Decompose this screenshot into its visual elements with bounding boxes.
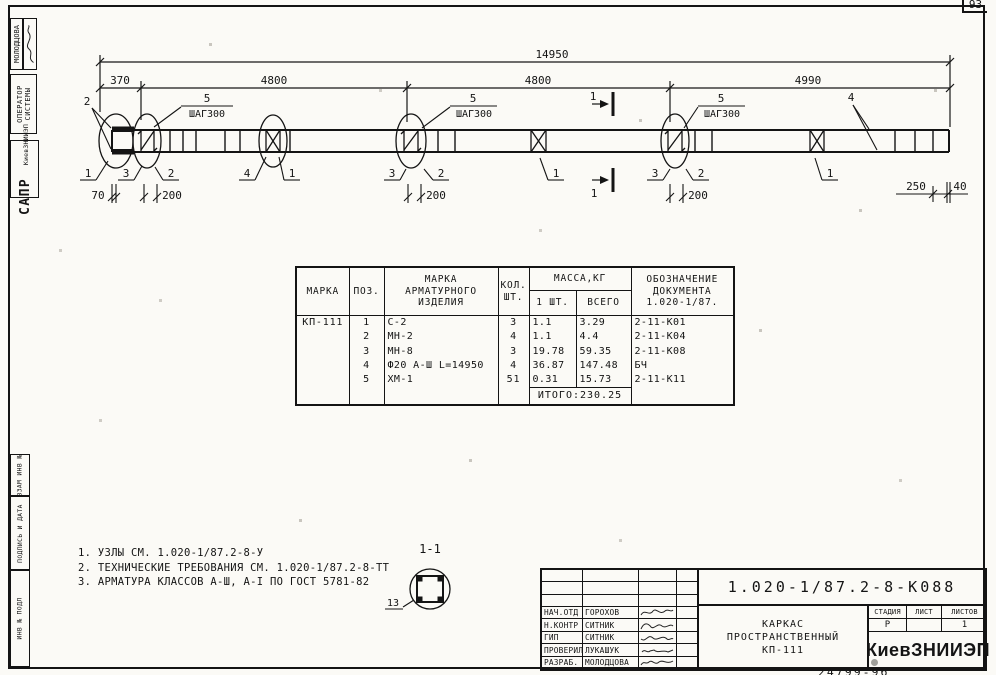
general-notes: 1. УЗЛЫ СМ. 1.020-1/87.2-8-У 2. ТЕХНИЧЕС…: [78, 546, 389, 590]
signature-5: [639, 657, 677, 669]
col-item-l1: МАРКА: [385, 274, 498, 286]
dim-200-c: 200: [688, 189, 708, 202]
cell-mass-all: 3.294.4 59.35147.48 15.73: [576, 316, 631, 388]
col-doc-l3: 1.020-1/87.: [632, 297, 734, 309]
dim-40: 40: [953, 180, 966, 193]
sheet-value: [907, 619, 942, 632]
position-leaders: [80, 157, 838, 180]
pos5-label-b: 5: [470, 92, 477, 105]
name-sitnik1: СИТНИК: [583, 619, 639, 632]
dim-370: 370: [110, 74, 130, 87]
section-title: 1-1: [419, 542, 441, 556]
cell-qty: 34 34 51: [498, 316, 529, 388]
bottom-dims: [108, 182, 968, 203]
cut-label-bottom: 1: [591, 187, 598, 200]
role-razrab: РАЗРАБ.: [542, 657, 583, 669]
pos1-label-b: 1: [289, 167, 296, 180]
drawing-title: КАРКАС ПРОСТРАНСТВЕННЫЙ КП-111: [697, 606, 867, 669]
pos3-label-c: 3: [652, 167, 659, 180]
col-item-l2: АРМАТУРНОГО: [385, 286, 498, 298]
cut-label-top: 1: [590, 90, 597, 103]
dim-200-a: 200: [162, 189, 182, 202]
step-callout-lines: [154, 106, 745, 128]
col-marka: МАРКА: [296, 267, 349, 316]
sheets-label: ЛИСТОВ: [942, 606, 987, 619]
role-gip: ГИП: [542, 632, 583, 645]
name-molodtsova: МОЛОДЦОВА: [583, 657, 639, 669]
cell-poz: 12 34 5: [349, 316, 384, 388]
col-item-l3: ИЗДЕЛИЯ: [385, 297, 498, 309]
dim-70: 70: [91, 189, 104, 202]
role-proveril: ПРОВЕРИЛ: [542, 644, 583, 657]
col-doc: ОБОЗНАЧЕНИЕ ДОКУМЕНТА 1.020-1/87.: [631, 267, 734, 316]
organization: КиевЗНИИЭП: [869, 632, 987, 669]
cell-mass-one: 1.11.1 19.7836.87 0.31: [529, 316, 576, 388]
drawing-sheet: 93 МОЛОДЦОВА ОПЕРАТОР СИСТЕМЫ САПР КиевЗ…: [0, 0, 996, 675]
name-sitnik2: СИТНИК: [583, 632, 639, 645]
document-number: 1.020-1/87.2-8-К088: [697, 570, 985, 606]
col-mass-all: ВСЕГО: [576, 291, 631, 316]
hole-punch-mark: [871, 659, 878, 666]
pos5-label-c: 5: [718, 92, 725, 105]
title-block: НАЧ.ОТД ГОРОХОВ Н.КОНТР СИТНИК ГИП СИТНИ…: [540, 568, 987, 671]
col-mass: МАССА,КГ: [529, 267, 631, 291]
signature-3: [639, 632, 677, 645]
pos5-label-a: 5: [204, 92, 211, 105]
pos1-label-c: 1: [553, 167, 560, 180]
note-2: 2. ТЕХНИЧЕСКИЕ ТРЕБОВАНИЯ СМ. 1.020-1/87…: [78, 561, 389, 576]
dim-4800-b: 4800: [525, 74, 552, 87]
pos2-label-b: 2: [438, 167, 445, 180]
note-3: 3. АРМАТУРА КЛАССОВ А-Ш, А-I ПО ГОСТ 578…: [78, 575, 389, 590]
dim-4990: 4990: [795, 74, 822, 87]
role-nachotd: НАЧ.ОТД: [542, 607, 583, 620]
col-qty: КОЛ. ШТ.: [498, 267, 529, 316]
pos2-label: 2: [168, 167, 175, 180]
title-line2: ПРОСТРАНСТВЕННЫЙ: [727, 631, 839, 644]
step300-label-b: ШАГ300: [456, 109, 492, 120]
col-qty-l2: ШТ.: [499, 292, 529, 304]
name-gorohov: ГОРОХОВ: [583, 607, 639, 620]
col-qty-l1: КОЛ.: [499, 280, 529, 292]
total-mass: ИТОГО:230.25: [529, 388, 631, 406]
pos4-top-label: 4: [848, 91, 855, 104]
pos1-label: 1: [85, 167, 92, 180]
stirrup-ticks: [170, 130, 933, 152]
note-1: 1. УЗЛЫ СМ. 1.020-1/87.2-8-У: [78, 546, 389, 561]
signature-2: [639, 619, 677, 632]
pos1-label-d: 1: [827, 167, 834, 180]
end-plates: [112, 127, 134, 155]
name-lukashuk: ЛУКАШУК: [583, 644, 639, 657]
signature-4: [639, 644, 677, 657]
dim-200-b: 200: [426, 189, 446, 202]
dim-4800-a: 4800: [261, 74, 288, 87]
pos2-label-c: 2: [698, 167, 705, 180]
pos3-label-b: 3: [389, 167, 396, 180]
signature-1: [639, 607, 677, 620]
specification-table: МАРКА ПОЗ. МАРКА АРМАТУРНОГО ИЗДЕЛИЯ КОЛ…: [295, 266, 735, 406]
col-doc-l2: ДОКУМЕНТА: [632, 286, 734, 298]
dim-total: 14950: [535, 48, 568, 61]
archive-number: 24799-96: [818, 665, 889, 675]
section-pos13: 13: [387, 598, 399, 609]
mark-value: КП-111: [297, 316, 349, 330]
cell-items: С-2МН-2 МН-8Ф20 А-Ш L=14950 ХМ-1: [384, 316, 498, 388]
title-line3: КП-111: [762, 644, 804, 657]
col-mass-one: 1 ШТ.: [529, 291, 576, 316]
step300-label-a: ШАГ300: [189, 109, 225, 120]
title-line1: КАРКАС: [762, 618, 804, 631]
stage-value: Р: [869, 619, 907, 632]
stage-sheet-block: СТАДИЯ ЛИСТ ЛИСТОВ Р 1 КиевЗНИИЭП: [867, 606, 985, 669]
pos4-label: 4: [244, 167, 251, 180]
dim-250: 250: [906, 180, 926, 193]
sheets-value: 1: [942, 619, 987, 632]
step300-label-c: ШАГ300: [704, 109, 740, 120]
cell-doc: 2-11-К012-11-К04 2-11-К08БЧ 2-11-К11: [631, 316, 734, 388]
role-nkontr: Н.КОНТР: [542, 619, 583, 632]
sheet-label: ЛИСТ: [907, 606, 942, 619]
col-item: МАРКА АРМАТУРНОГО ИЗДЕЛИЯ: [384, 267, 498, 316]
col-doc-l1: ОБОЗНАЧЕНИЕ: [632, 274, 734, 286]
pos3-label: 3: [123, 167, 130, 180]
title-block-signatures: НАЧ.ОТД ГОРОХОВ Н.КОНТР СИТНИК ГИП СИТНИ…: [542, 570, 697, 669]
stage-label: СТАДИЯ: [869, 606, 907, 619]
col-poz: ПОЗ.: [349, 267, 384, 316]
pos2-top-label: 2: [84, 95, 91, 108]
section-cut-marks: [592, 92, 613, 192]
detail-bubbles: [99, 114, 824, 168]
cell-mark: КП-111: [296, 316, 349, 388]
